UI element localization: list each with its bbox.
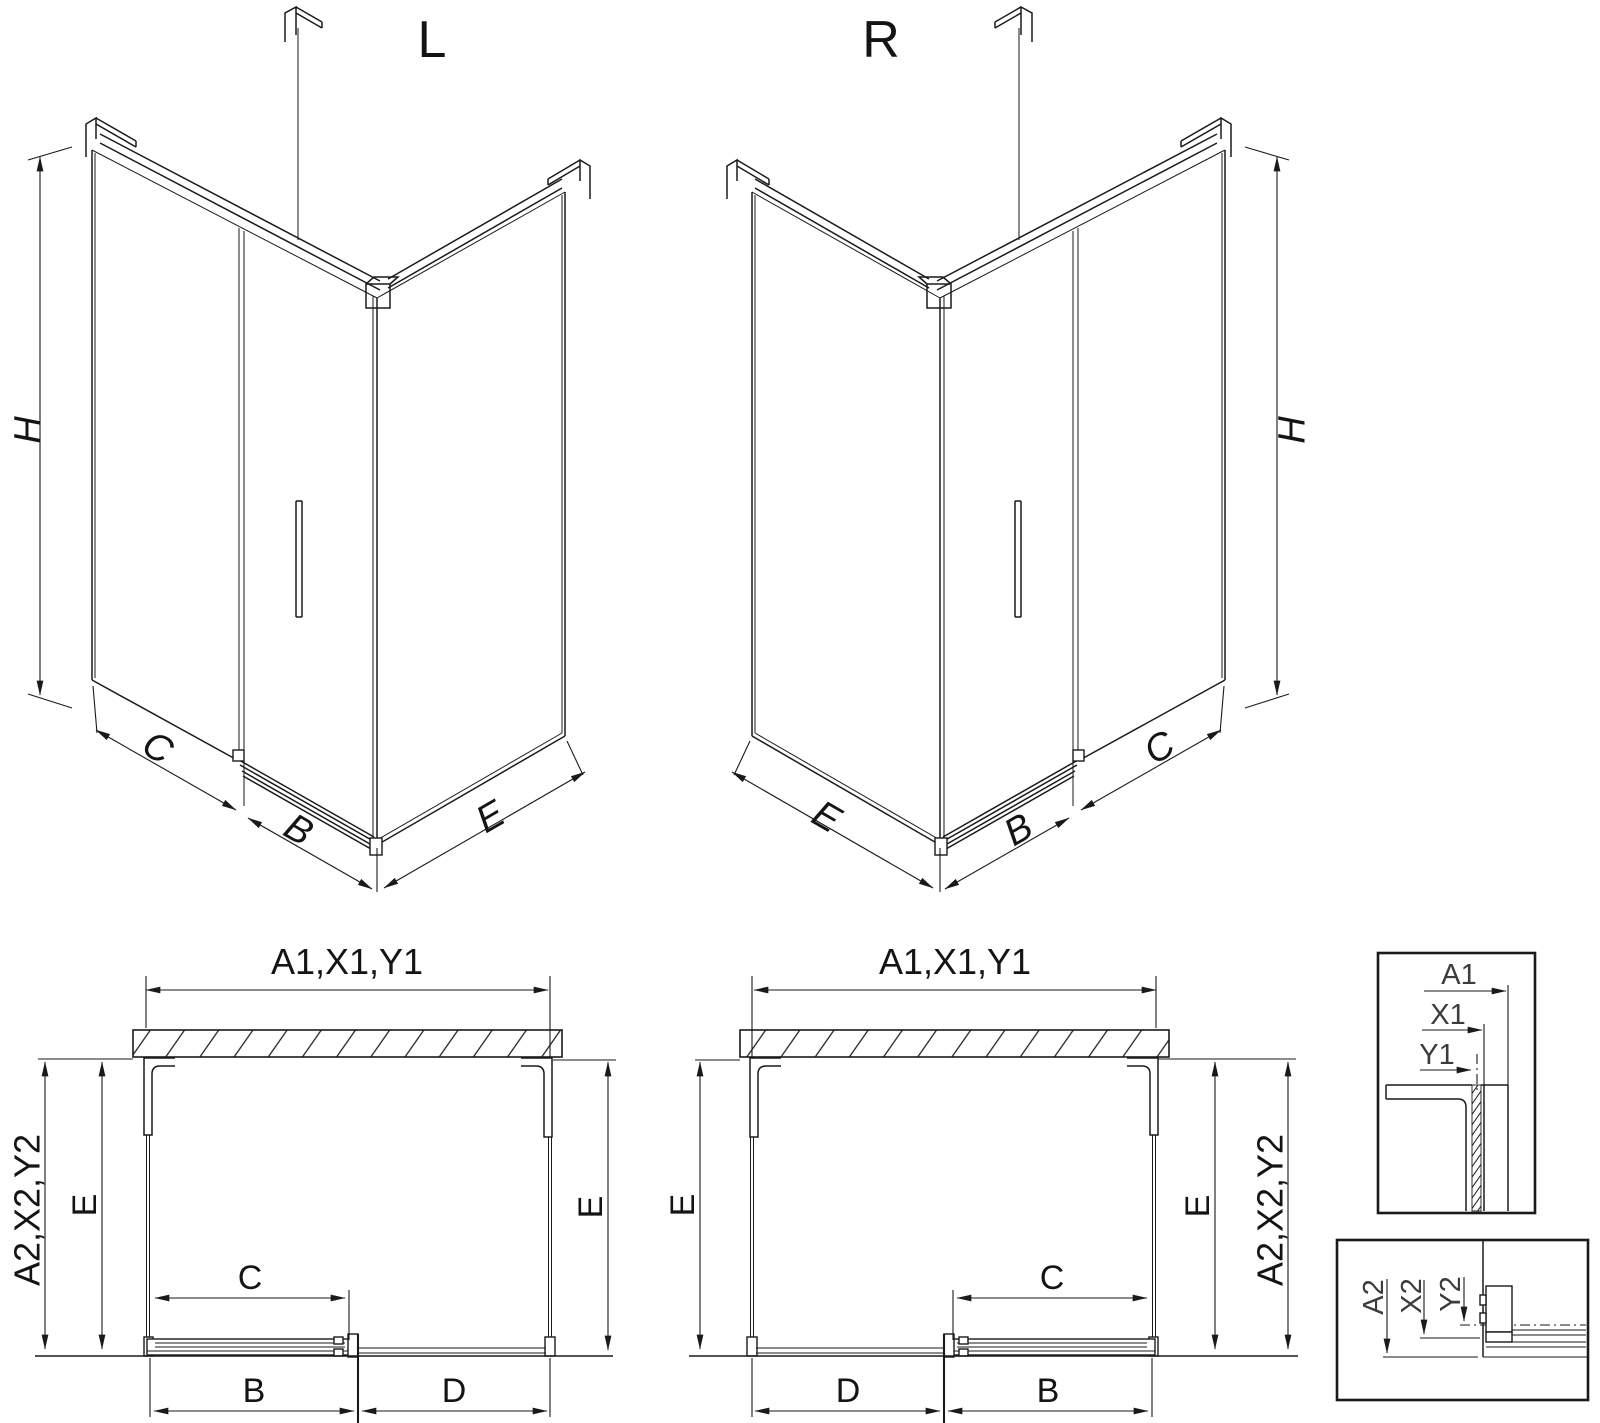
dim-label-x2: X2 [1396, 1278, 1428, 1313]
track-profile-section [1480, 1286, 1588, 1357]
dim-label-e: E [572, 1196, 610, 1219]
wall-profile-right [1127, 1058, 1158, 1356]
rail-corner-box [366, 277, 398, 308]
dimension-c: C [155, 1259, 349, 1340]
track-end-cap [935, 838, 947, 855]
variant-label-R: R [862, 11, 900, 69]
detail-view-top: A1 X1 Y1 [1378, 953, 1535, 1213]
dim-label-e: E [664, 1194, 702, 1217]
dim-label-y2: Y2 [1435, 1276, 1467, 1311]
dim-label-side: A2,X2,Y2 [7, 1134, 48, 1286]
track-roller [233, 750, 244, 761]
dim-label-x1: X1 [1430, 999, 1465, 1031]
dimension-e-left: E [66, 1062, 104, 1349]
wall-section [133, 1030, 562, 1057]
variant-label-L: L [418, 11, 447, 69]
technical-drawing-page: L [0, 0, 1600, 1423]
dim-label-h: H [7, 416, 49, 444]
dim-label-side: A2,X2,Y2 [1250, 1134, 1291, 1286]
roller [334, 1337, 343, 1344]
iso-view-right: R [727, 7, 1313, 892]
detail-view-bottom: A2 X2 Y2 [1337, 1240, 1588, 1400]
dimension-e-right: E [1179, 1062, 1217, 1349]
dim-label-b: B [997, 806, 1040, 855]
plan-view-left: A1,X1,Y1 [7, 941, 616, 1423]
wall-profile-right [521, 1058, 555, 1356]
dimension-d: D [362, 1358, 550, 1417]
dimension-c: C [953, 1259, 1147, 1340]
wall-profile-section [1386, 1085, 1508, 1211]
dim-label-e: E [805, 793, 849, 842]
wall-profile-left [144, 1058, 175, 1356]
door-track [147, 1334, 546, 1423]
dim-label-y1: Y1 [1419, 1039, 1454, 1071]
top-rail-side [752, 179, 940, 298]
door-track [756, 1334, 1155, 1423]
ceiling-mount-bracket [285, 7, 322, 240]
dimension-e-left: E [377, 741, 585, 892]
dim-label-a2: A2 [1358, 1279, 1390, 1314]
dim-label-c: C [135, 723, 180, 773]
dimension-b-right: B [945, 806, 1069, 889]
door-handle [296, 501, 302, 617]
dim-label-c: C [1137, 723, 1182, 773]
dim-label-b: B [277, 806, 320, 855]
dim-label-b: B [1037, 1372, 1060, 1410]
dim-label-e: E [1179, 1195, 1217, 1218]
wall-profile-left [747, 1058, 781, 1356]
dim-label-width: A1,X1,Y1 [271, 941, 423, 982]
roller [959, 1349, 968, 1356]
plan-view-right: A1,X1,Y1 [664, 941, 1298, 1423]
dimension-e-left: E [664, 1062, 702, 1349]
door-handle [1015, 501, 1021, 617]
ceiling-mount-bracket [995, 7, 1032, 240]
track-end-cap [370, 838, 382, 855]
glass-section [1472, 1085, 1481, 1211]
dim-label-c: C [1040, 1259, 1065, 1297]
roller [959, 1337, 968, 1344]
dim-label-e: E [66, 1194, 104, 1217]
dimension-b-left: B [248, 806, 372, 889]
iso-view-left: L [7, 7, 590, 892]
dimension-side: A2,X2,Y2 [7, 1062, 48, 1349]
dim-label-width: A1,X1,Y1 [879, 941, 1031, 982]
dim-label-d: D [442, 1372, 467, 1410]
dim-label-c: C [238, 1259, 263, 1297]
track-roller [1073, 750, 1084, 761]
dim-label-d: D [836, 1372, 861, 1410]
dim-label-h: H [1271, 416, 1313, 444]
dimension-e-right: E [732, 741, 940, 892]
dimension-d: D [752, 1358, 940, 1417]
top-rail-side [377, 179, 565, 298]
dim-label-a1: A1 [1441, 959, 1476, 991]
dim-label-b: B [243, 1372, 266, 1410]
roller [334, 1349, 343, 1356]
dimension-b: B [948, 1358, 1152, 1417]
top-rail-front [937, 134, 1225, 298]
dimension-b: B [150, 1358, 354, 1417]
top-rail-front [92, 134, 380, 298]
dimension-h-left: H [7, 147, 72, 708]
drawing-canvas: L [0, 0, 1600, 1423]
rail-corner-box [919, 277, 951, 308]
dimension-e-right: E [572, 1062, 610, 1350]
dimension-side: A2,X2,Y2 [1250, 1062, 1291, 1349]
dimension-h-right: H [1245, 147, 1313, 708]
wall-section [740, 1030, 1169, 1057]
